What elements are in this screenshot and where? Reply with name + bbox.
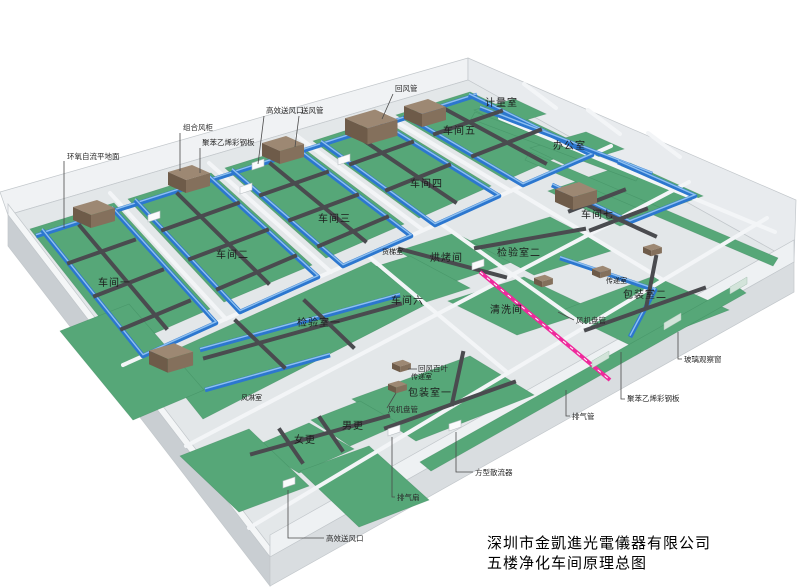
leader-line-supply-air-duct [295,116,299,147]
drawing-title: 五楼净化车间原理总图 [487,553,711,573]
leader-line-glass-observation-window [678,332,682,359]
leader-line-fan-coil-unit-1 [387,393,396,408]
company-name: 深圳市金凱進光電儀器有限公司 [487,533,711,553]
leader-line-square-diffuser [456,432,473,472]
leader-line-exhaust-fan [392,437,395,497]
cleanroom-axonometric-diagram: 车间一车间二车间三车间四车间五车间六车间七计量室办公室货梯室烘烤间检验室二清洗间… [0,0,800,587]
leader-line-polystyrene-steel-panel-right [621,352,625,399]
title-block: 深圳市金凱進光電儀器有限公司 五楼净化车间原理总图 [487,533,711,574]
leader-line-hepa-supply-outlet-top [258,116,264,164]
leader-line-hepa-supply-outlet-bottom [288,490,324,538]
leader-line-exhaust-pipe [566,390,570,416]
leader-line-fan-coil-unit-2 [558,312,574,320]
leader-lines [0,0,800,587]
leader-line-return-air-duct [382,94,393,119]
